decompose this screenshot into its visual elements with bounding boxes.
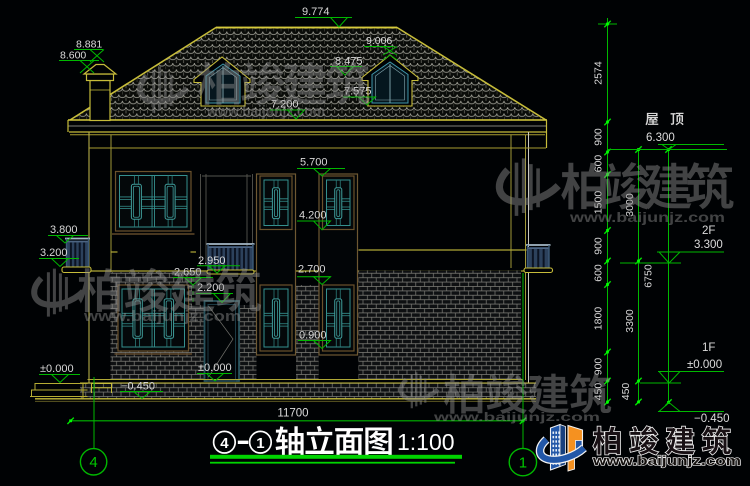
svg-text:1F: 1F (702, 342, 715, 354)
svg-text:www.baijunjz.com: www.baijunjz.com (592, 453, 741, 468)
svg-text:8.475: 8.475 (335, 56, 363, 68)
svg-text:±0.000: ±0.000 (198, 362, 232, 374)
svg-text:3.300: 3.300 (694, 239, 723, 251)
svg-text:900: 900 (593, 358, 605, 376)
svg-text:6.300: 6.300 (646, 132, 675, 144)
svg-text:4: 4 (220, 435, 229, 452)
svg-text:2574: 2574 (593, 61, 605, 85)
svg-text:3.800: 3.800 (50, 224, 78, 236)
svg-text:450: 450 (620, 383, 632, 401)
svg-text:2.700: 2.700 (298, 264, 326, 276)
svg-text:2F: 2F (702, 225, 715, 237)
svg-text:www.baijunjz.com: www.baijunjz.com (83, 309, 241, 325)
svg-text:3.200: 3.200 (40, 247, 68, 259)
svg-text:www.baijunjz.com: www.baijunjz.com (569, 209, 725, 225)
svg-text:3300: 3300 (624, 309, 636, 333)
svg-text:4: 4 (89, 454, 97, 471)
svg-text:900: 900 (593, 128, 605, 146)
svg-text:www.baijunjz.com: www.baijunjz.com (206, 104, 325, 120)
svg-text:11700: 11700 (277, 408, 308, 420)
svg-text:±0.000: ±0.000 (687, 359, 722, 371)
svg-text:−0.450: −0.450 (121, 381, 155, 393)
svg-text:9.774: 9.774 (302, 6, 330, 18)
svg-text:6750: 6750 (643, 264, 655, 288)
svg-text:9.006: 9.006 (366, 35, 392, 47)
svg-text:±0.000: ±0.000 (40, 363, 74, 375)
svg-text:1800: 1800 (593, 307, 605, 331)
svg-text:900: 900 (593, 237, 605, 255)
svg-text:−0.450: −0.450 (694, 413, 730, 425)
svg-text:5.700: 5.700 (300, 157, 328, 169)
svg-text:4.200: 4.200 (299, 210, 327, 222)
svg-text:600: 600 (593, 264, 605, 282)
svg-text:0.900: 0.900 (299, 330, 327, 342)
svg-text:8.600: 8.600 (60, 50, 86, 62)
svg-text:1: 1 (519, 455, 527, 472)
svg-text:1: 1 (256, 435, 264, 452)
svg-text:www.baijunjz.com: www.baijunjz.com (432, 410, 600, 424)
svg-text:2.950: 2.950 (198, 255, 226, 267)
svg-text:1:100: 1:100 (397, 429, 455, 455)
